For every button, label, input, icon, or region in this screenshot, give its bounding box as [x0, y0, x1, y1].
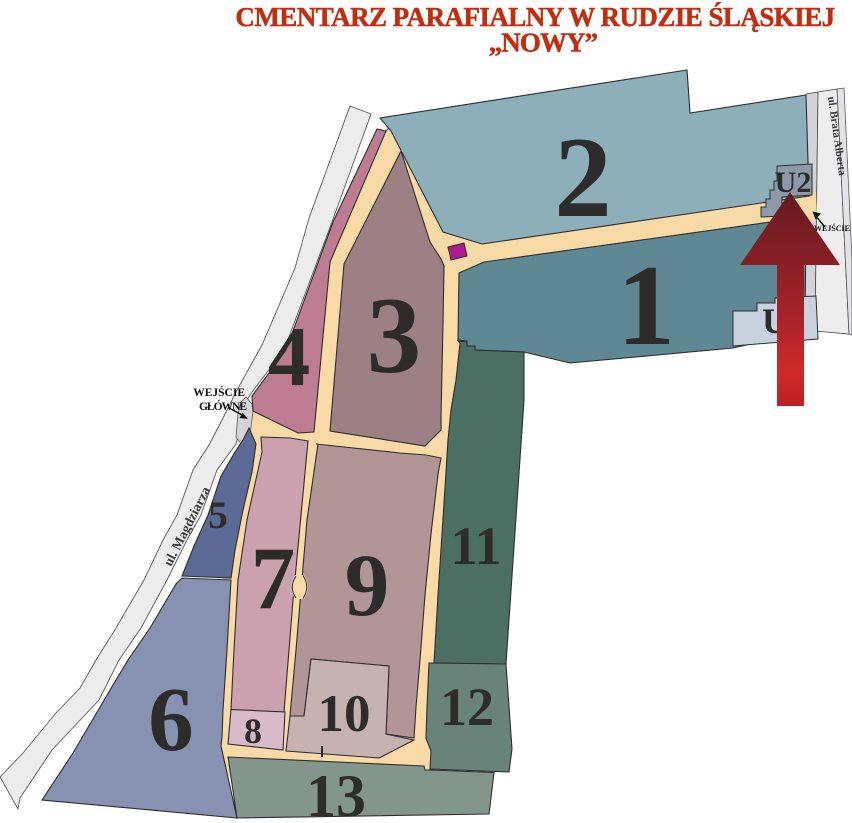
svg-text:8: 8	[244, 711, 262, 751]
svg-text:12: 12	[440, 677, 494, 737]
svg-text:WEJŚCIE: WEJŚCIE	[814, 223, 850, 233]
svg-text:U2: U2	[775, 166, 812, 199]
svg-text:4: 4	[268, 310, 311, 404]
svg-text:1: 1	[617, 242, 675, 370]
svg-text:7: 7	[251, 530, 296, 628]
svg-text:„NOWY”: „NOWY”	[489, 28, 598, 58]
svg-text:13: 13	[306, 763, 366, 823]
svg-text:3: 3	[367, 275, 422, 396]
svg-text:GŁÓWNE: GŁÓWNE	[199, 399, 247, 413]
svg-text:11: 11	[450, 516, 501, 576]
svg-text:2: 2	[554, 114, 612, 241]
svg-text:WEJŚCIE: WEJŚCIE	[193, 385, 245, 399]
svg-text:9: 9	[345, 537, 390, 635]
svg-text:6: 6	[148, 669, 194, 770]
svg-text:5: 5	[208, 494, 228, 537]
svg-text:10: 10	[318, 685, 371, 743]
